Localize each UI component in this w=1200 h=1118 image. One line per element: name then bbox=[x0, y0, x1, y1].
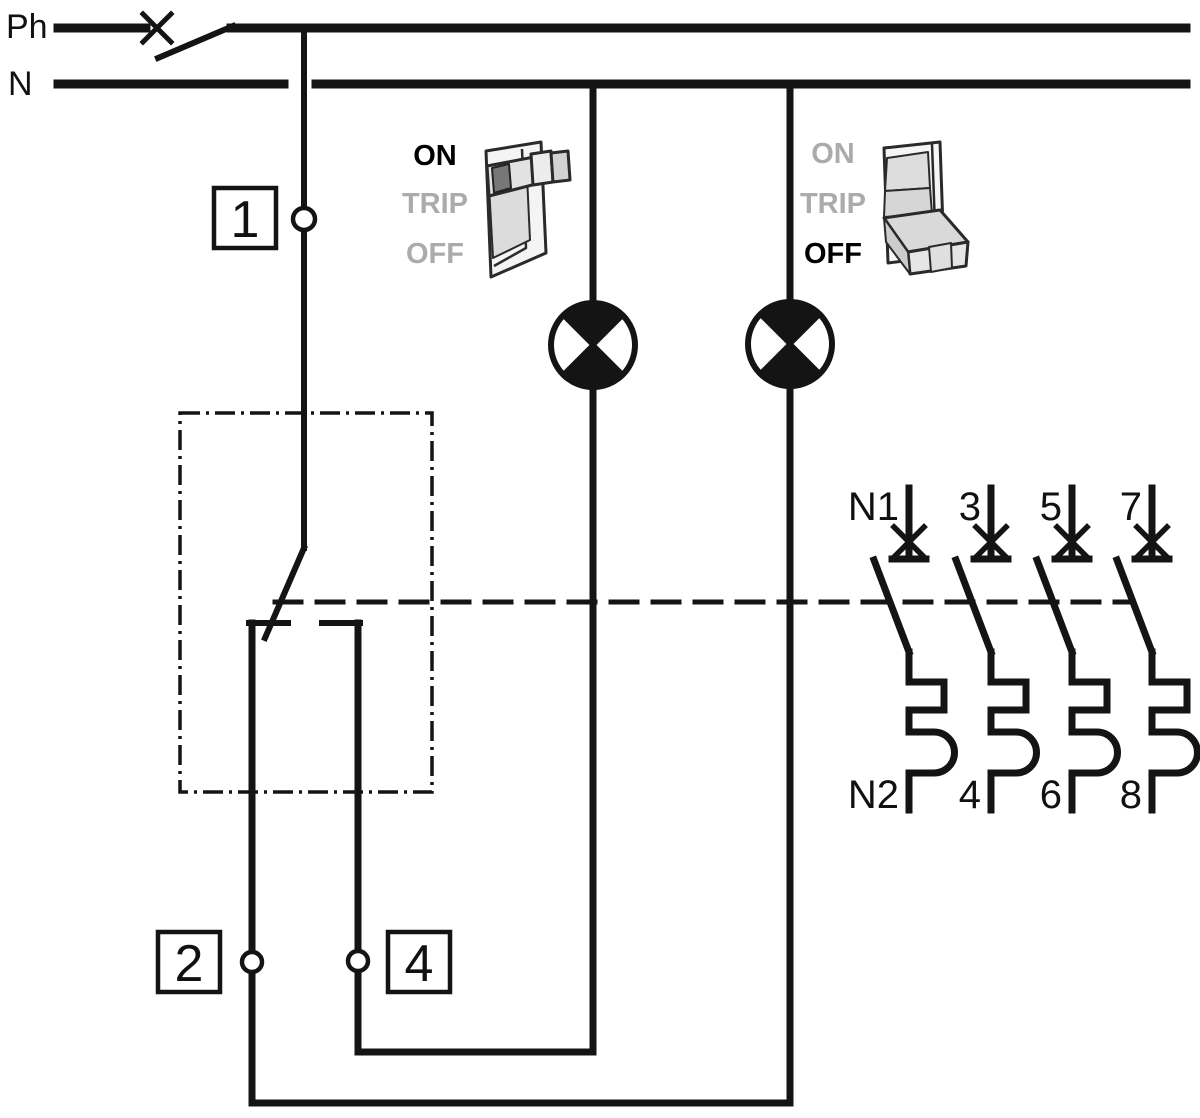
switch-right-off-label: OFF bbox=[804, 238, 862, 270]
terminal-4-label: 4 bbox=[405, 935, 434, 993]
terminal-2-node bbox=[242, 952, 262, 972]
breaker-top-label-7: 7 bbox=[1120, 485, 1142, 529]
switch-right-trip-label: TRIP bbox=[800, 188, 866, 220]
terminal-4-node bbox=[348, 951, 368, 971]
breaker-pole-4: 7 8 bbox=[1117, 485, 1197, 817]
switch-toggle-on-icon bbox=[486, 142, 570, 277]
phase-label: Ph bbox=[6, 8, 48, 46]
switch-left-trip-label: TRIP bbox=[402, 188, 468, 220]
terminal-1-label: 1 bbox=[231, 191, 260, 249]
breaker-pole-1: N1 N2 bbox=[848, 485, 955, 817]
breaker-top-label-3: 3 bbox=[959, 485, 981, 529]
breaker-bottom-label-4: 4 bbox=[959, 773, 981, 817]
wiring-diagram: Ph N 1 2 4 bbox=[0, 0, 1200, 1118]
switch-toggle-off-icon bbox=[884, 142, 968, 274]
switch-left-state-labels: ON TRIP OFF bbox=[402, 140, 468, 270]
breaker-top-label-5: 5 bbox=[1040, 485, 1062, 529]
phase-line bbox=[58, 14, 1186, 58]
switch-left-on-label: ON bbox=[413, 140, 457, 172]
breaker-pole-3: 5 6 bbox=[1037, 485, 1117, 817]
switch-left-off-label: OFF bbox=[406, 238, 464, 270]
breaker-bottom-label-n2: N2 bbox=[848, 773, 899, 817]
lamp-1-symbol bbox=[551, 303, 635, 387]
switch-right-state-labels: ON TRIP OFF bbox=[800, 138, 866, 270]
lamp-2-symbol bbox=[748, 302, 832, 386]
changeover-contact bbox=[249, 548, 360, 638]
terminal-2-label: 2 bbox=[175, 935, 204, 993]
neutral-label: N bbox=[8, 65, 33, 103]
switch-right-on-label: ON bbox=[811, 138, 855, 170]
breaker-bottom-label-6: 6 bbox=[1040, 773, 1062, 817]
terminal-1-node bbox=[293, 208, 315, 230]
breaker-pole-2: 3 4 bbox=[956, 485, 1037, 817]
breaker-bottom-label-8: 8 bbox=[1120, 773, 1142, 817]
breaker-top-label-n1: N1 bbox=[848, 485, 899, 529]
output-2-wire bbox=[252, 623, 790, 1103]
